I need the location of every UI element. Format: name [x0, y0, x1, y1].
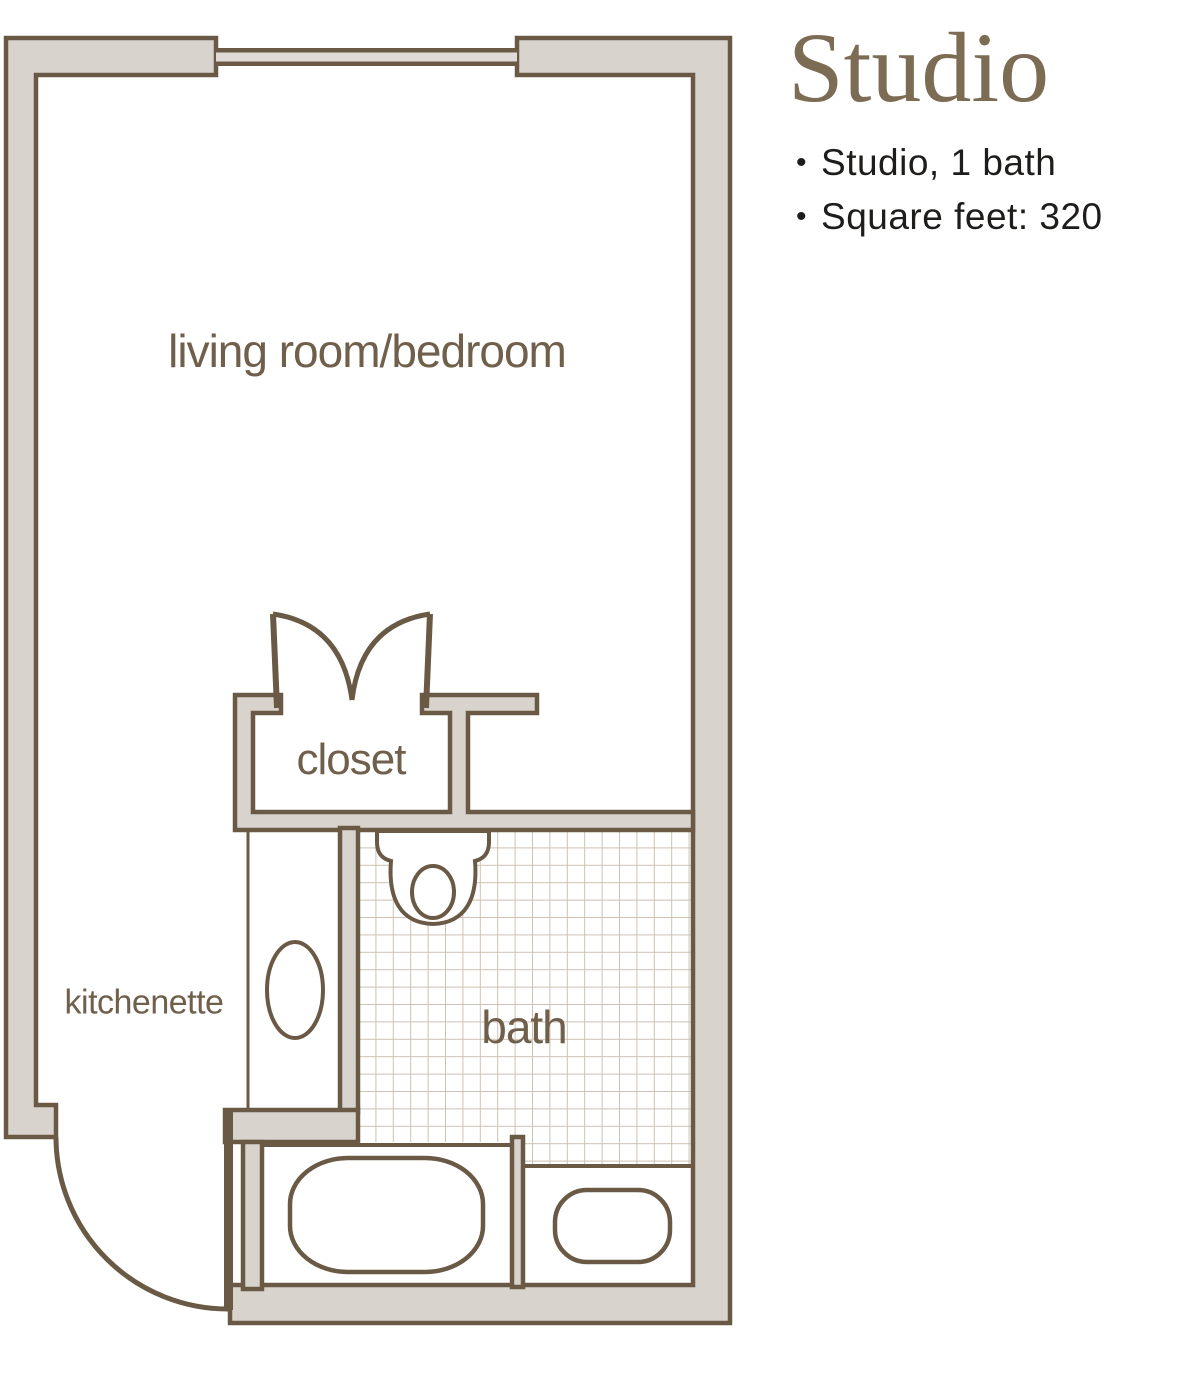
closet-double-doors-icon: [273, 614, 430, 708]
bullet-icon: •: [796, 190, 807, 244]
plan-title: Studio: [788, 18, 1188, 118]
kitchenette-label: kitchenette: [65, 984, 224, 1023]
bullet-icon: •: [796, 136, 807, 190]
detail-text: Square feet: 320: [821, 190, 1103, 244]
plan-details-list: • Studio, 1 bath • Square feet: 320: [788, 136, 1188, 244]
detail-item-square-feet: • Square feet: 320: [796, 190, 1188, 244]
window: [216, 48, 517, 66]
sink-room-left-wall: [512, 1137, 523, 1287]
info-panel: Studio • Studio, 1 bath • Square feet: 3…: [788, 18, 1188, 244]
tub-room-left-wall: [243, 1142, 262, 1289]
bathroom-sink-icon: [555, 1190, 670, 1262]
kitchenette-bottom-wall: [225, 1110, 358, 1142]
detail-text: Studio, 1 bath: [821, 136, 1056, 190]
bathtub-icon: [290, 1158, 483, 1272]
kitchenette-sink-icon: [267, 942, 323, 1038]
floor-plan-page: { "info_panel": { "title": "Studio", "bu…: [0, 0, 1200, 1375]
left-wall: [6, 38, 216, 1137]
closet-label: closet: [297, 735, 406, 785]
counter-right-wall: [340, 828, 358, 1112]
detail-item-beds-baths: • Studio, 1 bath: [796, 136, 1188, 190]
living-room-label: living room/bedroom: [168, 324, 566, 378]
entry-door-icon: [56, 1112, 233, 1310]
bath-label: bath: [481, 1000, 567, 1054]
